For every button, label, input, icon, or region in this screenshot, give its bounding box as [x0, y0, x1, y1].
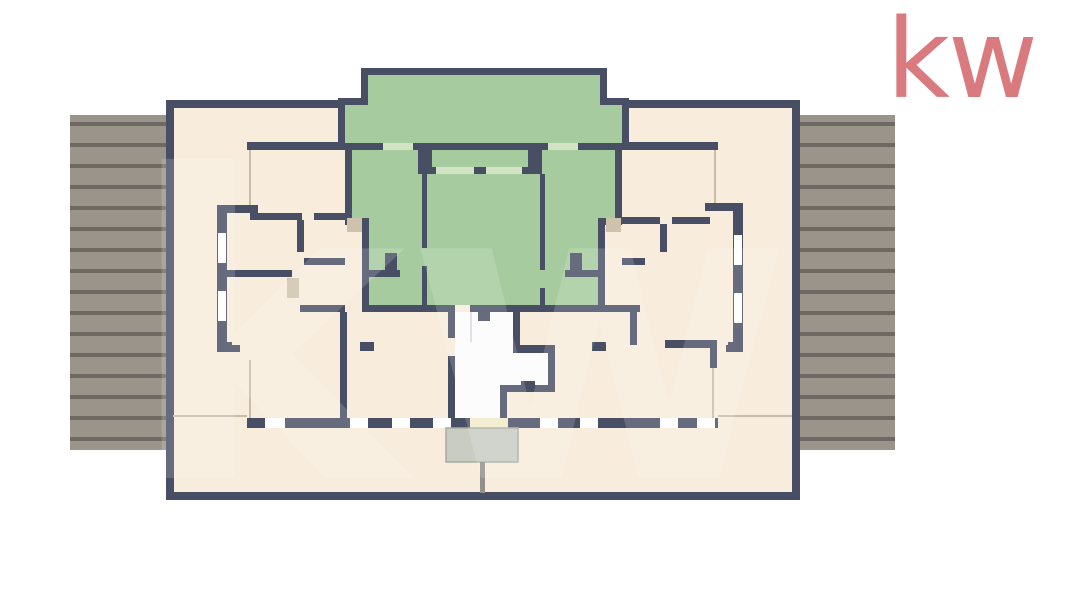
- floor-plan-page: kw kw: [0, 0, 1066, 600]
- kw-watermark: kw: [126, 89, 793, 578]
- kw-logo: kw: [886, 2, 1036, 118]
- right-roof-deck: [800, 115, 895, 450]
